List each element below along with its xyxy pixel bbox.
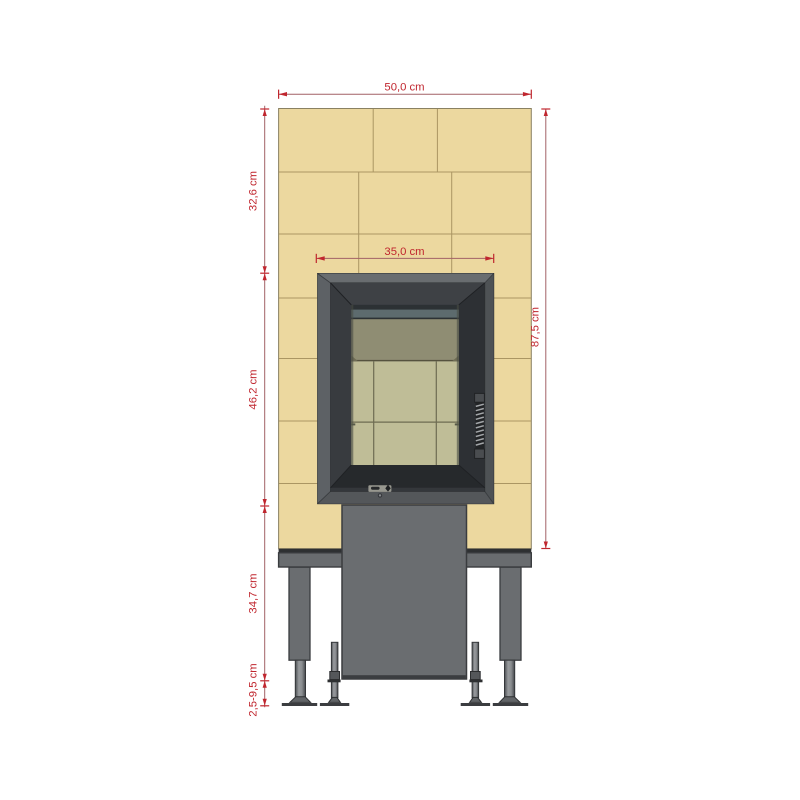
svg-text:46,2 cm: 46,2 cm [248,369,260,409]
svg-text:34,7 cm: 34,7 cm [248,573,260,613]
svg-text:2,5-9,5 cm: 2,5-9,5 cm [248,663,260,716]
svg-text:35,0 cm: 35,0 cm [384,246,424,258]
svg-text:50,0 cm: 50,0 cm [384,82,424,94]
svg-text:32,6 cm: 32,6 cm [248,171,260,211]
svg-text:87,5 cm: 87,5 cm [529,307,541,347]
